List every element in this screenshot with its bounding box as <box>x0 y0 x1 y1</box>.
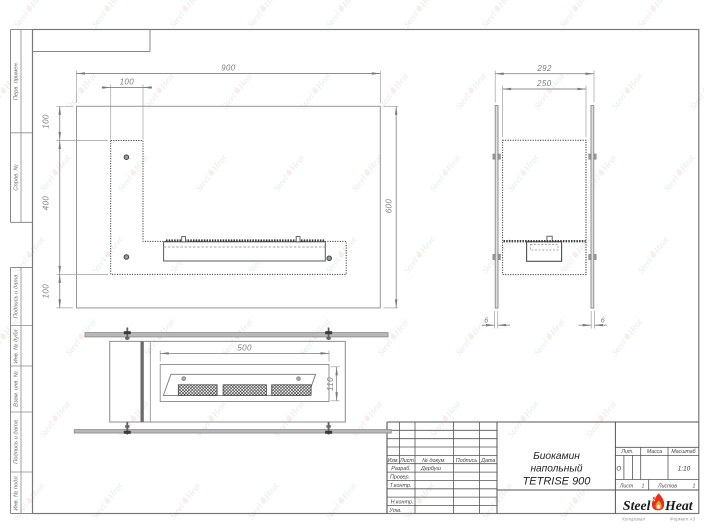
svg-text:1:10: 1:10 <box>678 466 691 473</box>
svg-text:6: 6 <box>484 316 489 325</box>
svg-text:Подпись и дата: Подпись и дата <box>14 419 20 464</box>
svg-text:100: 100 <box>42 284 51 299</box>
svg-text:Провер.: Провер. <box>390 475 410 481</box>
svg-text:Лит.: Лит. <box>620 449 633 455</box>
svg-text:Лист: Лист <box>619 484 634 490</box>
svg-text:Steel: Steel <box>623 498 651 513</box>
svg-text:600: 600 <box>385 199 394 214</box>
svg-text:Биокамин: Биокамин <box>533 451 580 462</box>
svg-text:Т.контр.: Т.контр. <box>390 483 412 489</box>
svg-text:Heat: Heat <box>664 498 694 513</box>
svg-text:Лист: Лист <box>399 458 414 464</box>
svg-text:Подпись и дата: Подпись и дата <box>14 274 20 319</box>
svg-text:100: 100 <box>120 78 135 87</box>
svg-text:TETRISE 900: TETRISE 900 <box>523 476 592 488</box>
svg-text:100: 100 <box>42 114 51 129</box>
svg-text:110: 110 <box>326 377 335 391</box>
svg-text:250: 250 <box>536 79 552 88</box>
svg-text:№ докум.: № докум. <box>422 458 446 464</box>
svg-text:292: 292 <box>536 64 552 73</box>
svg-text:напольный: напольный <box>530 464 582 475</box>
svg-text:Копировал: Копировал <box>622 517 645 522</box>
svg-text:Н.контр.: Н.контр. <box>391 500 414 506</box>
svg-text:Утв.: Утв. <box>388 508 401 514</box>
svg-text:Изм.: Изм. <box>387 458 399 464</box>
svg-text:Разраб.: Разраб. <box>391 466 411 472</box>
svg-text:Дербуш: Дербуш <box>420 466 441 472</box>
svg-text:1: 1 <box>642 484 645 490</box>
svg-text:1: 1 <box>693 484 696 490</box>
svg-text:Инв. № дубл.: Инв. № дубл. <box>14 328 20 364</box>
svg-text:500: 500 <box>237 344 252 353</box>
svg-text:Подпись: Подпись <box>456 458 478 464</box>
svg-text:Взам. инв. №: Взам. инв. № <box>14 371 20 407</box>
svg-text:Масштаб: Масштаб <box>671 449 696 455</box>
svg-text:Листов: Листов <box>657 484 677 490</box>
svg-text:О: О <box>616 466 621 473</box>
svg-text:Справ. №: Справ. № <box>14 164 20 190</box>
svg-text:Дата: Дата <box>480 458 495 464</box>
svg-text:Формат А3: Формат А3 <box>670 517 696 522</box>
svg-text:6: 6 <box>601 316 606 325</box>
svg-text:Инв. № подл.: Инв. № подл. <box>14 475 20 511</box>
svg-text:Масса: Масса <box>647 449 662 455</box>
svg-text:900: 900 <box>221 64 236 73</box>
svg-text:400: 400 <box>42 196 51 211</box>
svg-text:Перв. примен.: Перв. примен. <box>14 62 20 101</box>
